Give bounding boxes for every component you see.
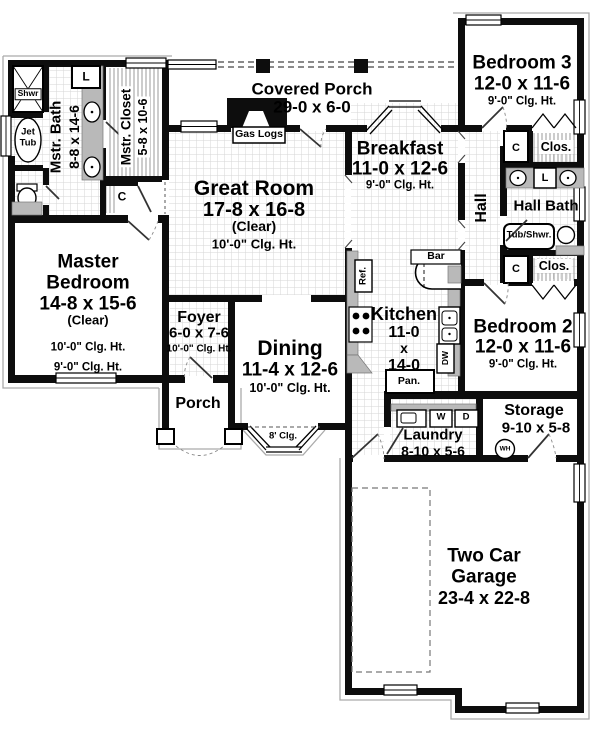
- room-dims-kitchen-3: 14-0: [388, 357, 420, 375]
- room-dims-covered-porch: 29-0 x 6-0: [273, 97, 351, 116]
- fixture-label-dishwasher: DW: [441, 351, 451, 365]
- fixture-label-jet-tub-2: Tub: [20, 139, 37, 150]
- room-label-master-bedroom-2: Bedroom: [46, 272, 129, 293]
- room-label-master-bedroom-1: Master: [57, 251, 118, 272]
- room-label-laundry: Laundry: [403, 428, 462, 445]
- floorplan-canvas: Covered Porch 29-0 x 6-0 Bedroom 3 12-0 …: [0, 0, 600, 734]
- room-label-kitchen: Kitchen: [371, 304, 437, 324]
- fixture-label-linen-master: L: [82, 70, 89, 83]
- room-ceiling-foyer: 10'-0" Clg. Ht.: [167, 343, 232, 354]
- room-ceiling-outer-master-bedroom: 9'-0" Clg. Ht.: [54, 362, 122, 375]
- room-ceiling-dining: 10'-0" Clg. Ht.: [249, 381, 330, 395]
- room-dims-master-closet: 5-8 x 10-6: [136, 97, 150, 158]
- room-dims-master-bedroom: 14-8 x 15-6: [39, 293, 136, 314]
- room-dims-laundry: 8-10 x 5-6: [401, 444, 465, 460]
- room-label-master-closet: Mstr. Closet: [118, 87, 133, 168]
- room-label-bedroom3: Bedroom 3: [472, 52, 571, 73]
- room-dims-bedroom2: 12-0 x 11-6: [475, 336, 571, 357]
- room-dims-master-bath: 8-8 x 14-6: [67, 105, 83, 169]
- room-label-master-bath: Mstr. Bath: [49, 101, 66, 174]
- fixture-label-clos-top: Clos.: [539, 140, 574, 154]
- room-label-bedroom2: Bedroom 2: [473, 316, 572, 337]
- room-dims-foyer: 6-0 x 7-6: [169, 326, 229, 343]
- fixture-label-closet-hall-top: C: [512, 142, 520, 154]
- room-label-breakfast: Breakfast: [357, 138, 444, 159]
- room-label-garage-2: Garage: [451, 566, 516, 587]
- fixture-label-closet-master: C: [116, 190, 129, 203]
- room-label-dining: Dining: [257, 337, 322, 361]
- fixture-label-linen-hall: L: [542, 172, 549, 184]
- room-label-garage-1: Two Car: [447, 545, 521, 566]
- room-dims-garage: 23-4 x 22-8: [438, 588, 530, 608]
- room-dims-bedroom3: 12-0 x 11-6: [474, 73, 570, 94]
- room-dims-storage: 9-10 x 5-8: [502, 421, 570, 438]
- room-label-hall: Hall: [473, 193, 491, 222]
- room-dims-dining: 11-4 x 12-6: [242, 359, 338, 380]
- room-label-storage: Storage: [504, 402, 564, 420]
- fixture-label-bar: Bar: [427, 251, 445, 263]
- room-label-covered-porch: Covered Porch: [252, 79, 373, 98]
- room-dims-kitchen-2: x: [400, 341, 408, 357]
- room-label-porch: Porch: [175, 395, 220, 413]
- room-ceiling-master-bedroom: 10'-0" Clg. Ht.: [51, 342, 126, 355]
- fixture-label-closet-hall-bottom: C: [512, 263, 520, 275]
- room-note-master-bedroom: (Clear): [67, 314, 108, 329]
- room-dims-breakfast: 11-0 x 12-6: [352, 158, 448, 179]
- room-ceiling-bedroom3: 9'-0" Clg. Ht.: [488, 96, 556, 109]
- fixture-label-water-heater: WH: [500, 445, 511, 452]
- room-ceiling-breakfast: 9'-0" Clg. Ht.: [366, 180, 434, 193]
- room-label-hall-bath: Hall Bath: [513, 199, 578, 216]
- fixture-label-dryer: D: [463, 413, 470, 424]
- room-note-great-room: (Clear): [232, 219, 276, 235]
- fixture-label-washer: W: [437, 413, 446, 424]
- room-ceiling-bedroom2: 9'-0" Clg. Ht.: [489, 359, 557, 372]
- fixture-label-refrigerator: Ref.: [358, 267, 369, 285]
- fixture-label-gas-logs: Gas Logs: [235, 129, 283, 141]
- fixture-label-pantry: Pan.: [398, 376, 420, 388]
- room-label-great-room: Great Room: [194, 177, 314, 201]
- room-bay-ceiling-dining: 8' Clg.: [267, 432, 299, 443]
- fixture-label-shower: Shwr: [15, 88, 42, 100]
- fixture-label-tub-shower: Tub/Shwr.: [507, 231, 552, 242]
- room-ceiling-great-room: 10'-0" Clg. Ht.: [212, 238, 296, 253]
- fixture-label-clos-bottom: Clos.: [537, 259, 572, 273]
